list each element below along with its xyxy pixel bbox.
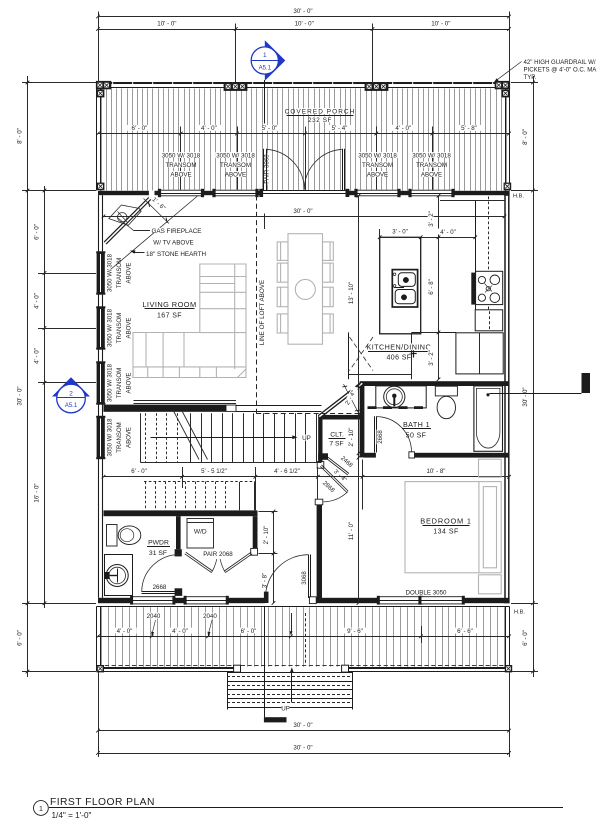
svg-text:6' - 0": 6' - 0" [241, 628, 257, 635]
svg-text:4' - 0": 4' - 0" [201, 125, 217, 132]
svg-text:H.B.: H.B. [513, 194, 524, 200]
svg-text:ABOVE: ABOVE [126, 318, 133, 339]
svg-text:ABOVE: ABOVE [126, 263, 133, 284]
svg-text:7 SF: 7 SF [329, 441, 343, 448]
svg-text:3050 W/ 3018: 3050 W/ 3018 [162, 152, 201, 159]
svg-text:1: 1 [263, 52, 267, 59]
svg-text:3050 W/ 3018: 3050 W/ 3018 [216, 152, 255, 159]
svg-text:5' - 8": 5' - 8" [461, 125, 477, 132]
svg-text:3' - 2": 3' - 2" [428, 350, 435, 366]
svg-text:6' - 0": 6' - 0" [34, 224, 41, 240]
svg-text:TRANSOM: TRANSOM [220, 162, 251, 169]
svg-text:4' - 0": 4' - 0" [34, 293, 41, 309]
svg-text:2' - 10": 2' - 10" [348, 428, 355, 447]
svg-text:TRANSOM: TRANSOM [116, 422, 123, 452]
svg-text:3050 W/ 3018: 3050 W/ 3018 [107, 253, 114, 292]
svg-text:W/D: W/D [194, 529, 207, 536]
svg-text:PAIR 2068: PAIR 2068 [203, 551, 233, 558]
svg-text:50 SF: 50 SF [406, 433, 427, 440]
svg-text:ABOVE: ABOVE [126, 373, 133, 394]
svg-text:5' - 0": 5' - 0" [262, 125, 278, 132]
svg-text:5' - 4": 5' - 4" [332, 125, 348, 132]
svg-text:232 SF: 232 SF [308, 117, 332, 124]
svg-text:30' - 0": 30' - 0" [293, 722, 312, 729]
svg-text:4' - 0": 4' - 0" [117, 628, 133, 635]
svg-text:10' - 0": 10' - 0" [431, 21, 450, 28]
svg-text:GAS FIREPLACE: GAS FIREPLACE [151, 228, 201, 235]
svg-text:1: 1 [39, 806, 43, 813]
svg-text:KITCHEN/DINING: KITCHEN/DINING [366, 343, 431, 352]
svg-text:2040: 2040 [203, 613, 217, 620]
svg-text:4' - 0": 4' - 0" [34, 348, 41, 364]
svg-text:30' - 0": 30' - 0" [293, 8, 312, 15]
svg-text:FIRST FLOOR PLAN: FIRST FLOOR PLAN [50, 797, 155, 808]
svg-text:8' - 0": 8' - 0" [17, 128, 24, 144]
svg-text:6' - 6": 6' - 6" [457, 628, 473, 635]
svg-text:6' - 0": 6' - 0" [17, 630, 24, 646]
svg-text:8' - 0": 8' - 0" [522, 129, 529, 145]
svg-text:9' - 6": 9' - 6" [347, 628, 363, 635]
svg-text:4' - 6 1/2": 4' - 6 1/2" [274, 468, 300, 475]
svg-text:3050 W/ 3018: 3050 W/ 3018 [358, 152, 397, 159]
svg-text:30' - 0": 30' - 0" [293, 745, 312, 752]
svg-text:2668: 2668 [153, 584, 167, 591]
svg-text:11' - 0": 11' - 0" [348, 522, 355, 540]
svg-text:TRANSOM: TRANSOM [166, 162, 197, 169]
svg-text:BATH 1: BATH 1 [403, 420, 430, 429]
svg-text:2' - 10": 2' - 10" [264, 526, 270, 545]
svg-text:4' - 0": 4' - 0" [440, 229, 456, 236]
svg-text:3050 W/ 3018: 3050 W/ 3018 [412, 152, 451, 159]
svg-text:30' - 0": 30' - 0" [522, 387, 529, 406]
svg-text:10' - 0": 10' - 0" [157, 21, 176, 28]
svg-text:16' - 0": 16' - 0" [34, 483, 41, 502]
svg-text:13' - 10": 13' - 10" [348, 282, 355, 304]
svg-text:42" HIGH GUARDRAIL W/: 42" HIGH GUARDRAIL W/ [524, 59, 596, 66]
svg-text:TRANSOM: TRANSOM [362, 162, 393, 169]
svg-text:6' - 0": 6' - 0" [131, 468, 147, 475]
svg-text:ABOVE: ABOVE [421, 171, 442, 178]
svg-text:A5.1: A5.1 [65, 403, 78, 409]
svg-text:W/ TV ABOVE: W/ TV ABOVE [153, 240, 193, 247]
svg-text:PICKETS @ 4'-0" O.C. MA: PICKETS @ 4'-0" O.C. MA [524, 67, 598, 74]
svg-text:TYP.: TYP. [524, 74, 537, 81]
svg-text:DOUBLE 3050: DOUBLE 3050 [406, 590, 447, 597]
svg-text:10' - 0": 10' - 0" [295, 21, 314, 28]
svg-text:3068: 3068 [301, 571, 308, 585]
svg-text:3' - 0": 3' - 0" [392, 229, 408, 236]
svg-text:UP: UP [281, 706, 290, 713]
svg-text:COVERED PORCH: COVERED PORCH [285, 109, 356, 116]
svg-text:1/4" = 1'-0": 1/4" = 1'-0" [52, 811, 92, 820]
svg-text:3' - 8": 3' - 8" [263, 573, 269, 588]
svg-text:10' - 8": 10' - 8" [427, 468, 446, 475]
svg-text:TRANSOM: TRANSOM [416, 162, 447, 169]
svg-text:TRANSOM: TRANSOM [116, 368, 123, 398]
svg-text:3050 W/ 3018: 3050 W/ 3018 [107, 418, 114, 457]
svg-text:PAIR 3068: PAIR 3068 [264, 154, 271, 184]
svg-text:3' - 2": 3' - 2" [428, 211, 435, 227]
svg-text:2040: 2040 [147, 613, 161, 620]
svg-text:ABOVE: ABOVE [225, 171, 246, 178]
svg-text:6' - 0": 6' - 0" [132, 125, 148, 132]
svg-text:6' - 8": 6' - 8" [428, 279, 435, 295]
svg-text:4' - 0": 4' - 0" [395, 125, 411, 132]
svg-text:H.B.: H.B. [514, 610, 525, 616]
svg-text:PWDR: PWDR [148, 540, 169, 547]
svg-text:167 SF: 167 SF [157, 313, 182, 320]
svg-text:BEDROOM 1: BEDROOM 1 [420, 517, 472, 526]
svg-text:3050 W/ 3018: 3050 W/ 3018 [107, 363, 114, 402]
svg-text:31 SF: 31 SF [149, 550, 167, 557]
svg-text:A5.1: A5.1 [259, 65, 272, 71]
svg-text:18" STONE HEARTH: 18" STONE HEARTH [146, 251, 207, 258]
svg-text:UP: UP [302, 435, 311, 442]
svg-text:6' - 0": 6' - 0" [522, 630, 529, 646]
svg-text:TRANSOM: TRANSOM [116, 313, 123, 343]
svg-text:LINE OF LOFT ABOVE: LINE OF LOFT ABOVE [259, 280, 266, 345]
svg-text:ABOVE: ABOVE [367, 171, 388, 178]
svg-text:134 SF: 134 SF [433, 529, 459, 536]
svg-text:30' - 0": 30' - 0" [17, 386, 24, 405]
svg-text:CLT.: CLT. [330, 432, 344, 439]
svg-text:406 SF: 406 SF [387, 354, 412, 361]
svg-text:2668: 2668 [377, 430, 384, 444]
svg-text:ABOVE: ABOVE [126, 427, 133, 448]
svg-text:30' - 0": 30' - 0" [293, 208, 312, 215]
svg-text:5' - 5 1/2": 5' - 5 1/2" [201, 468, 227, 475]
svg-text:3050 W/ 3018: 3050 W/ 3018 [107, 308, 114, 347]
svg-text:ABOVE: ABOVE [170, 171, 191, 178]
svg-text:2: 2 [69, 390, 73, 397]
svg-text:4' - 0": 4' - 0" [172, 628, 188, 635]
svg-text:LIVING ROOM: LIVING ROOM [142, 300, 196, 309]
